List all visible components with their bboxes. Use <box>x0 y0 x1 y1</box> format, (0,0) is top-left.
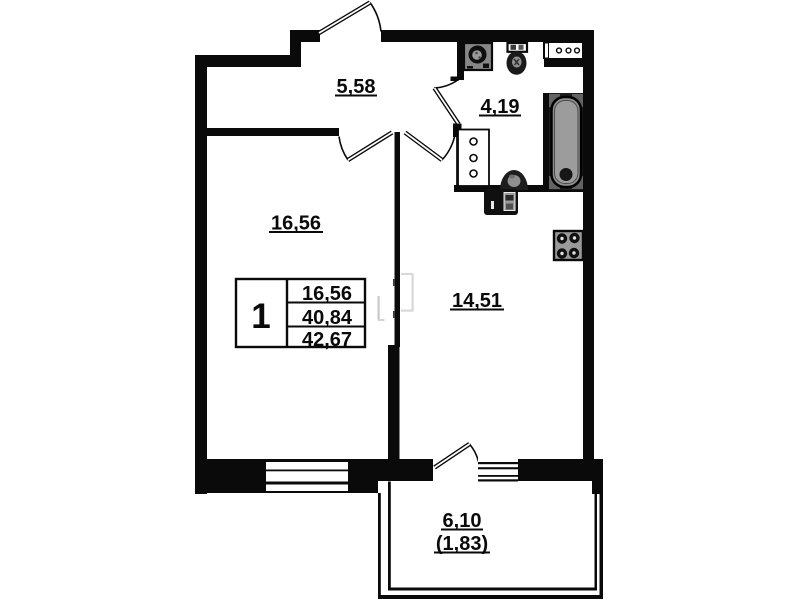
svg-text:42,67: 42,67 <box>302 329 352 351</box>
svg-text:1: 1 <box>251 297 270 336</box>
svg-text:16,56: 16,56 <box>302 283 352 305</box>
svg-text:40,84: 40,84 <box>302 307 353 329</box>
